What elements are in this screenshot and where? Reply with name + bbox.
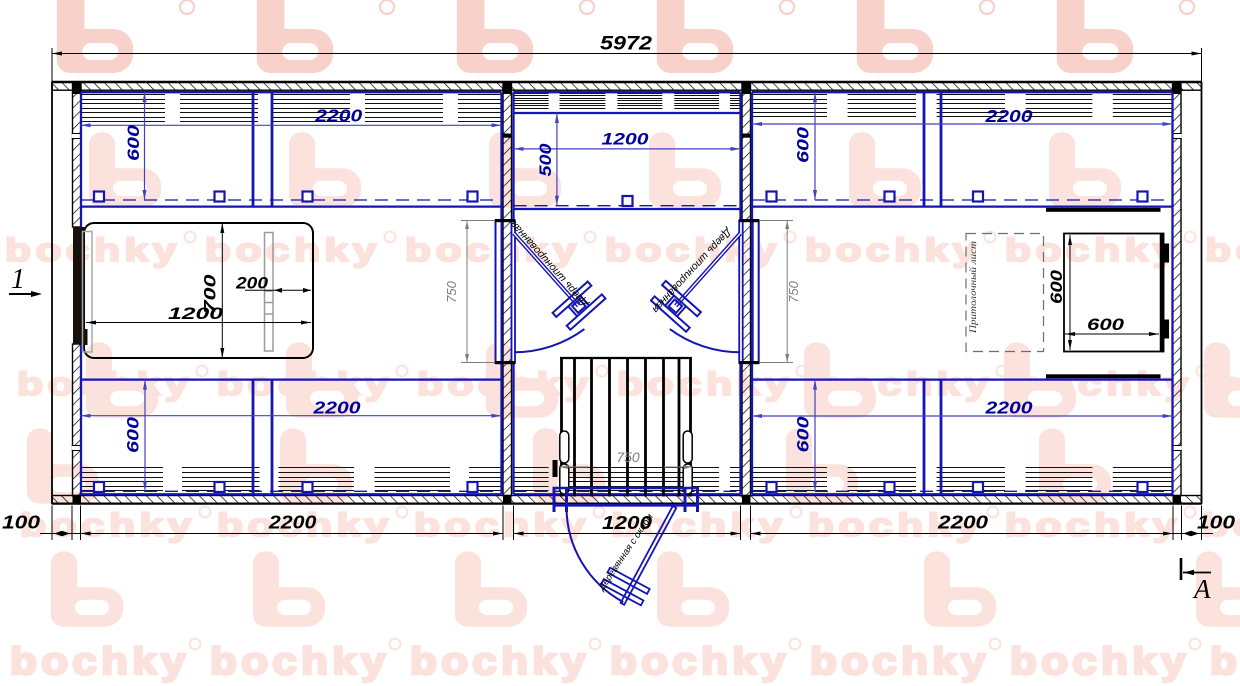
svg-text:600: 600 [124,124,143,161]
svg-text:bochky: bochky [810,640,990,682]
svg-text:bochky: bochky [610,640,790,682]
svg-text:2200: 2200 [984,106,1033,126]
svg-text:750: 750 [786,280,801,302]
svg-text:750: 750 [616,449,640,465]
svg-text:1200: 1200 [602,130,650,149]
svg-text:600: 600 [794,126,813,163]
svg-text:bochky: bochky [205,233,381,269]
svg-text:bochky: bochky [20,508,196,544]
svg-text:bochky: bochky [210,640,390,682]
svg-text:700: 700 [201,274,220,314]
svg-text:bochky: bochky [1005,233,1181,269]
svg-text:bochky: bochky [414,508,590,544]
svg-text:bochky: bochky [617,367,793,403]
svg-text:bochky: bochky [10,640,190,682]
svg-text:750: 750 [444,280,459,302]
svg-text:bochky: bochky [1005,508,1181,544]
svg-text:bochky: bochky [1210,640,1240,682]
svg-text:100: 100 [2,513,40,533]
svg-text:2200: 2200 [314,106,363,126]
svg-text:600: 600 [794,416,813,453]
svg-text:1: 1 [11,264,25,295]
svg-text:200: 200 [235,274,269,293]
svg-text:100: 100 [1197,513,1235,533]
svg-text:2200: 2200 [984,398,1033,418]
svg-text:bochky: bochky [1010,640,1190,682]
svg-text:600: 600 [1047,269,1066,304]
svg-text:А: А [1192,574,1211,604]
svg-text:600: 600 [124,416,143,453]
svg-text:600: 600 [1087,315,1125,334]
svg-text:bochky: bochky [5,233,181,269]
svg-text:2200: 2200 [268,513,317,533]
svg-text:bochky: bochky [410,640,590,682]
svg-text:2200: 2200 [937,513,988,533]
svg-text:5972: 5972 [600,34,653,55]
svg-text:2200: 2200 [312,398,361,418]
svg-text:500: 500 [537,143,555,177]
svg-text:Притолочный лист: Притолочный лист [968,241,979,334]
svg-text:bochky: bochky [805,233,981,269]
svg-text:bochky: bochky [1205,233,1240,269]
